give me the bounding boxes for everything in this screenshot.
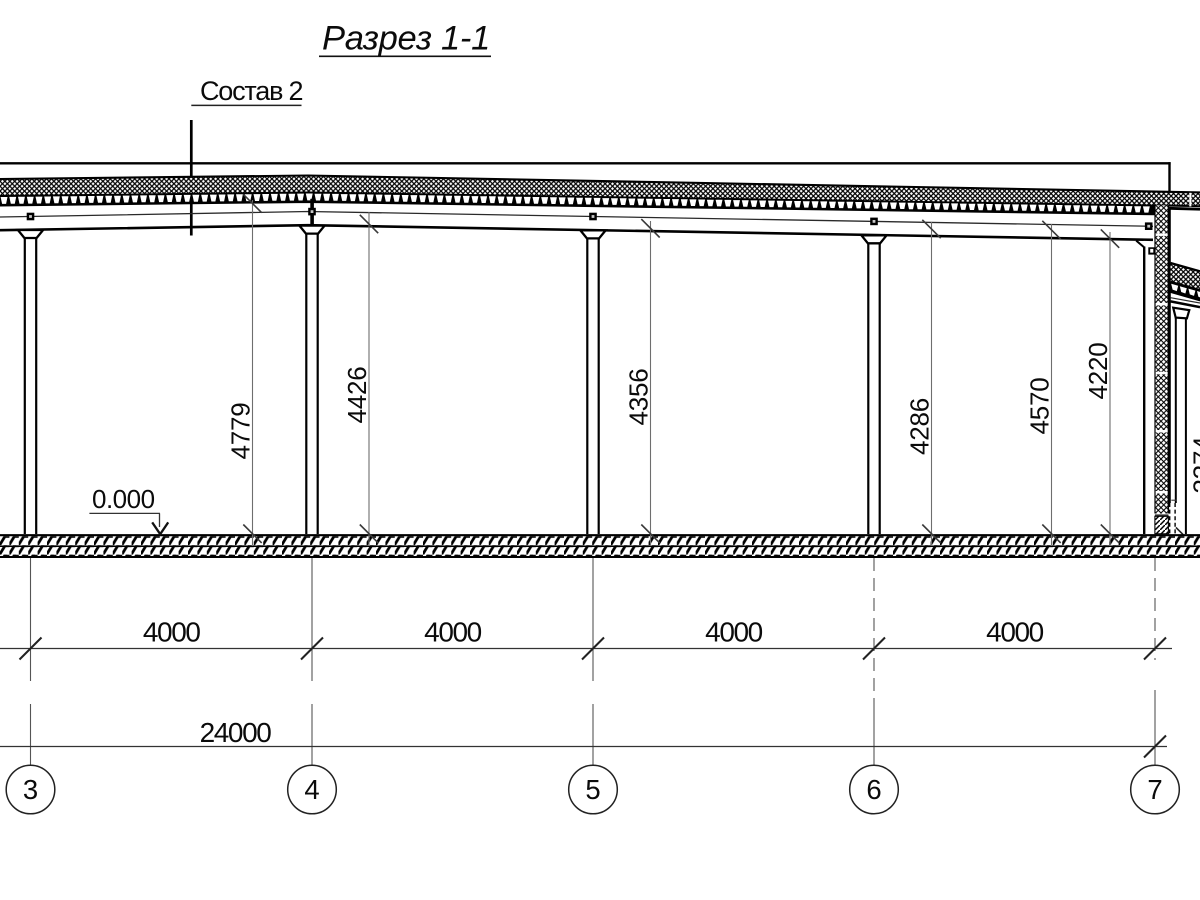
svg-text:Состав 2: Состав 2 <box>200 76 303 106</box>
svg-text:4220: 4220 <box>1083 342 1113 399</box>
svg-text:0.000: 0.000 <box>92 484 155 514</box>
svg-text:3: 3 <box>23 774 38 805</box>
svg-text:4286: 4286 <box>905 398 935 455</box>
svg-text:4426: 4426 <box>342 366 372 423</box>
svg-text:5: 5 <box>585 774 600 805</box>
svg-text:4000: 4000 <box>143 617 201 648</box>
svg-text:7: 7 <box>1147 774 1162 805</box>
svg-text:4000: 4000 <box>705 617 763 648</box>
svg-text:3374: 3374 <box>1188 436 1200 493</box>
svg-text:6: 6 <box>866 774 881 805</box>
svg-text:4356: 4356 <box>624 368 654 425</box>
svg-text:4000: 4000 <box>424 617 482 648</box>
svg-text:4570: 4570 <box>1025 377 1055 434</box>
svg-text:24000: 24000 <box>200 717 272 748</box>
svg-text:4000: 4000 <box>986 617 1044 648</box>
svg-text:4779: 4779 <box>226 402 256 459</box>
svg-text:Разрез 1-1: Разрез 1-1 <box>322 20 490 58</box>
svg-text:4: 4 <box>304 774 319 805</box>
